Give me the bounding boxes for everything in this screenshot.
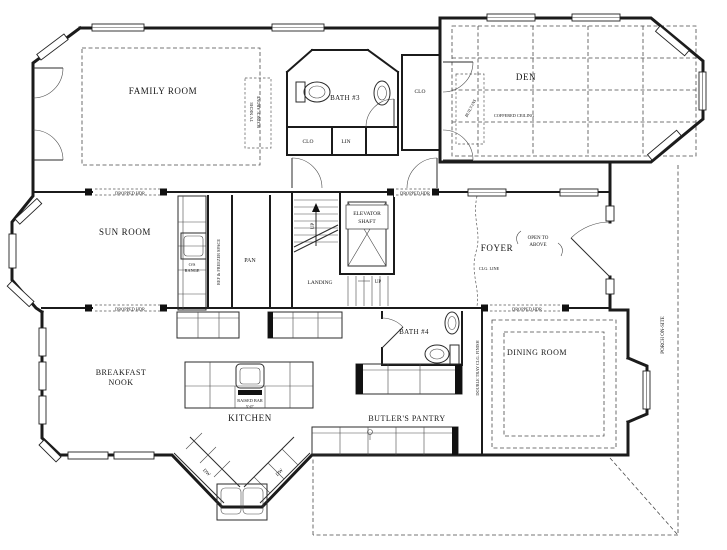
double-tray-label: DOUBLE TRAY CLG. FINISH [475,340,480,395]
window [9,234,16,268]
clg-line-label: CLG. LINE [479,266,500,271]
raised-bar-label: RAISED BAR [237,398,263,403]
window [68,452,108,459]
kitchen-sink-bay [217,484,267,520]
window [560,189,598,196]
toilet-icon [304,82,330,102]
coffered-ceiling-label: COFFERED CEILING [494,113,534,118]
toilet-icon [425,345,449,363]
shaft-label: SHAFT [358,219,376,225]
dropped-hdr-label: DROPPED HDR [115,307,145,312]
stairs-lower-run [348,276,388,306]
clo-label: CLO [303,139,314,145]
family-room-label: FAMILY ROOM [129,86,197,96]
sidelite-window [606,206,614,221]
dishwasher-label: DW [201,468,211,478]
raised-bar-dim-label: 5'-0" [246,404,255,409]
window [39,362,46,390]
breakfast-nook-label-2: NOOK [108,378,133,387]
tv-niche-label-2: SCONCE ABOVE [256,95,261,128]
door [33,68,63,98]
window [39,396,46,424]
bath4-fixtures [425,312,459,364]
window [699,72,706,110]
door [443,62,473,92]
kitchen-tall-cabinets [178,196,206,310]
dishwasher-label: DW [275,468,285,478]
dining-room-label: DINING ROOM [507,348,567,357]
butlers-pantry-counter [356,364,462,394]
window [572,14,620,21]
floor-plan-sheet: FAMILY ROOM SUN ROOM DEN COFFERED CEILIN… [0,0,727,550]
kitchen-label: KITCHEN [228,413,272,423]
pantry-label: PAN [244,258,256,264]
door [33,130,63,160]
elevator-label: ELEVATOR [353,211,381,217]
foyer-ceiling-line-dashed [474,196,478,306]
tv-niche-label-1: TV NICHE [249,102,254,122]
windows [7,14,706,462]
window [656,26,690,56]
os-range-label-1: O/S [189,262,196,267]
front-door [571,222,610,277]
ref-freezer-label: REF & FREEZER SPACE [216,239,221,285]
dropped-hdr-label: DROPPED HDR [512,307,542,312]
dropped-hdr-label: DROPPED HDR [115,191,145,196]
window [92,24,144,31]
floor-plan: FAMILY ROOM SUN ROOM DEN COFFERED CEILIN… [0,0,727,550]
up-label: UP [311,223,316,230]
sink-icon [445,312,459,334]
window [648,130,682,160]
kitchen-upper-counters [177,312,342,338]
interior-walls [33,50,628,455]
window [37,34,68,60]
lin-label: LIN [341,139,350,145]
bath3-label: BATH #3 [330,94,360,102]
family-room-ceiling-dashed [82,48,260,165]
window [7,281,34,307]
door [366,99,394,127]
butlers-pantry-label: BUTLER'S PANTRY [368,414,445,423]
window [468,189,506,196]
sidelite-window [606,279,614,294]
window [272,24,324,31]
breakfast-nook-label-1: BREAKFAST [96,368,147,377]
above-label: ABOVE [529,243,546,248]
exterior-walls [12,18,703,507]
door [292,158,322,188]
window [643,371,650,409]
stairs-upper-run [294,200,338,252]
window [39,328,46,356]
dining-tray-ceiling-dashed [492,320,616,448]
foyer-label: FOYER [481,243,514,253]
door [407,158,437,188]
toilet-tank [450,345,459,364]
up-label: UP [375,280,382,285]
open-to-label: OPEN TO [528,236,549,241]
bath4-label: BATH #4 [399,328,429,336]
window [114,452,154,459]
landing-label: LANDING [307,280,332,286]
room-labels: FAMILY ROOM SUN ROOM DEN COFFERED CEILIN… [96,72,567,423]
built-ins-label: BUILT-INS [464,98,478,118]
porch-label: PORCH ON-SITE [661,316,666,353]
den-coffered-ceiling-grid [452,26,696,156]
dropped-hdr-label: DROPPED HDR [400,191,430,196]
sun-room-label: SUN ROOM [99,227,151,237]
up-arrow-icon [312,203,320,212]
window [487,14,535,21]
door [443,130,473,160]
perimeter-counter [312,427,458,455]
den-label: DEN [516,72,536,82]
clo-label: CLO [415,89,426,95]
os-range-label-2: RANGE [185,268,200,273]
